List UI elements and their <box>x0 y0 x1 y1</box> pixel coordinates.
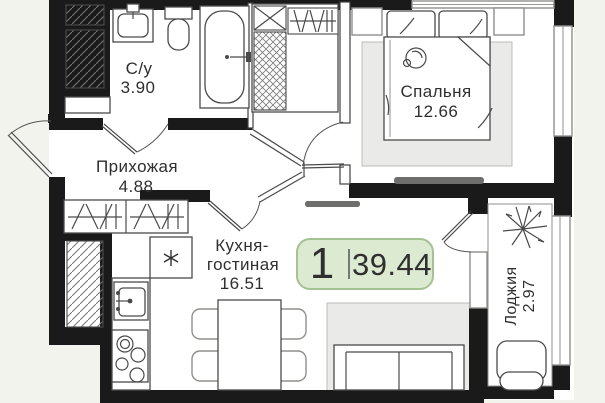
kitchen-living-label-line1: Кухня- <box>215 236 269 255</box>
ventilation-shaft <box>66 5 104 25</box>
bathroom-cabinet <box>65 97 110 113</box>
floor-plan: 1 39.44 С/у 3.90 Прихожая 4.88 Спальня 1… <box>0 0 605 403</box>
sofa-icon <box>334 345 464 390</box>
dining-table <box>218 300 281 390</box>
living-tv <box>305 201 360 207</box>
apartment-badge: 1 39.44 <box>297 239 433 289</box>
toilet-icon <box>165 7 192 50</box>
bathroom-label: С/у <box>126 59 153 78</box>
nightstand <box>494 8 524 35</box>
kitchen-living-area: 16.51 <box>220 274 265 293</box>
nightstand <box>352 8 382 35</box>
loggia-contents <box>488 204 552 390</box>
bedroom-label: Спальня <box>400 82 471 101</box>
ventilation-shaft <box>66 30 104 88</box>
bathtub-icon <box>200 6 251 108</box>
floor-plan-drawing: 1 39.44 С/у 3.90 Прихожая 4.88 Спальня 1… <box>0 0 605 403</box>
bath-sink-icon <box>113 4 153 42</box>
kitchen-living-label-line2: гостиная <box>207 255 279 274</box>
kitchen-sink-icon <box>114 282 148 320</box>
bedroom-tv <box>394 177 484 184</box>
closet-shelves <box>254 32 286 110</box>
badge-rooms-count: 1 <box>310 239 334 288</box>
closet-rail <box>288 8 338 34</box>
hallway-label: Прихожая <box>96 157 178 176</box>
closet <box>252 4 338 112</box>
fridge-icon <box>150 237 192 278</box>
bathroom-area: 3.90 <box>121 78 156 97</box>
hall-wardrobe <box>64 200 188 233</box>
ventilation-shaft-lower <box>67 241 103 327</box>
loggia-armchair-icon <box>497 341 546 390</box>
loggia-area: 2.97 <box>521 280 538 313</box>
bedroom-area: 12.66 <box>414 102 459 121</box>
loggia-label: Лоджия <box>503 266 520 325</box>
badge-total-area: 39.44 <box>352 247 432 282</box>
hallway-area: 4.88 <box>119 177 154 196</box>
bedroom-west-partition <box>340 2 350 123</box>
bedroom-west-partition-lower <box>340 165 350 184</box>
stove-icon <box>112 330 148 382</box>
balcony-side-window <box>470 252 487 308</box>
